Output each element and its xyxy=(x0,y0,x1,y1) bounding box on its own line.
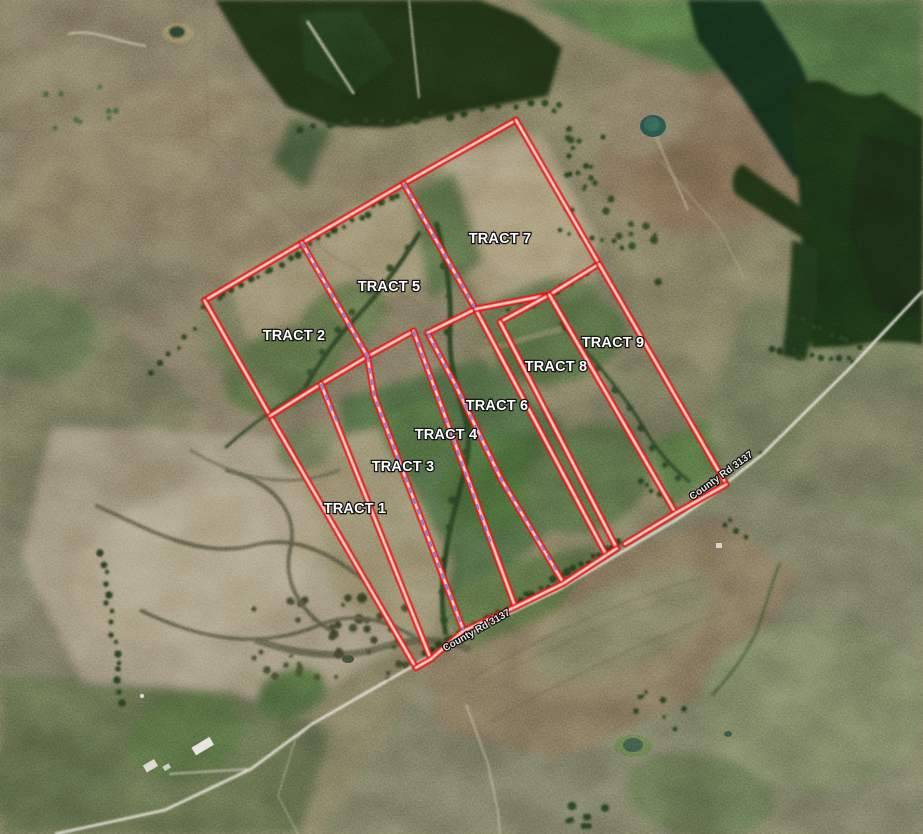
svg-text:TRACT 2: TRACT 2 xyxy=(263,328,326,344)
svg-text:TRACT 8: TRACT 8 xyxy=(525,359,588,375)
svg-text:TRACT 9: TRACT 9 xyxy=(582,335,645,351)
svg-text:TRACT 4: TRACT 4 xyxy=(415,427,478,443)
svg-text:TRACT 3: TRACT 3 xyxy=(372,459,435,475)
svg-text:TRACT 5: TRACT 5 xyxy=(358,279,421,295)
svg-text:TRACT 1: TRACT 1 xyxy=(324,501,387,517)
svg-text:TRACT 6: TRACT 6 xyxy=(466,398,529,414)
svg-text:TRACT 7: TRACT 7 xyxy=(469,231,532,247)
